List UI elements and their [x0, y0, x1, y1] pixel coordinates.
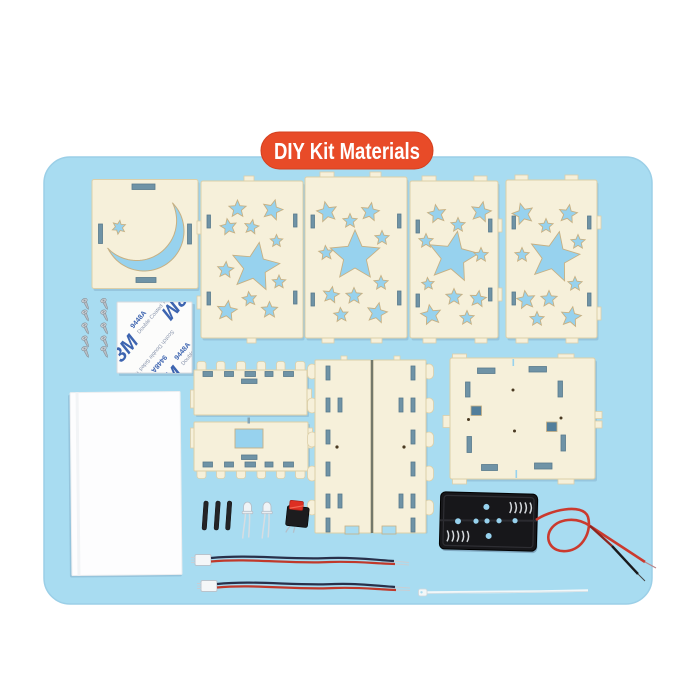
svg-text:DIY Kit Materials: DIY Kit Materials [274, 138, 420, 164]
